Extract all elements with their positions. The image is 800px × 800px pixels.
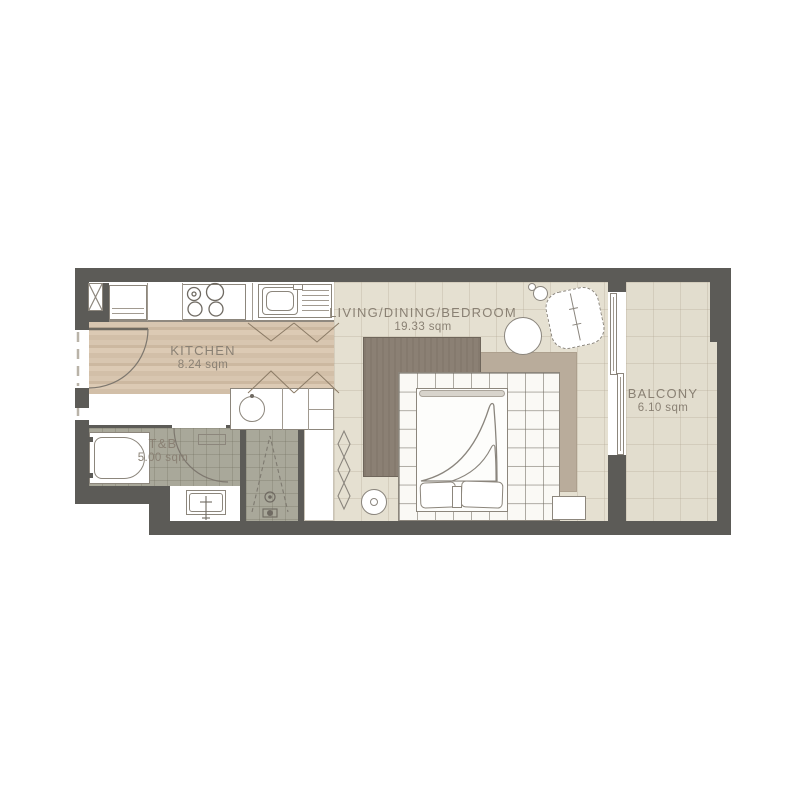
tub-tap <box>89 473 93 478</box>
pillow-icon <box>420 481 457 508</box>
balcony-label: BALCONY 6.10 sqm <box>613 387 713 415</box>
wall-bottom <box>149 521 731 535</box>
chair-centerline <box>570 293 581 340</box>
shower-floor <box>246 428 298 521</box>
wall-balcony-divider-top <box>608 268 626 292</box>
wall-balcony-divider-bottom <box>608 455 626 535</box>
kitchen-name: KITCHEN <box>123 344 283 358</box>
toilet-bath-name: T&B <box>103 437 223 451</box>
sliding-door-panel <box>610 293 617 375</box>
door-panel-line <box>613 297 614 371</box>
bed-headband <box>419 390 505 397</box>
wall-shaft-cap <box>88 311 108 322</box>
balcony-name: BALCONY <box>613 387 713 401</box>
toilet-bath-label: T&B 5.00 sqm <box>103 437 223 465</box>
shower-partition-right <box>298 426 304 521</box>
toilet-inner <box>189 493 223 512</box>
wall-left-stub <box>75 388 89 408</box>
closet-floor <box>304 428 334 521</box>
floor-lamp-inner <box>370 498 378 506</box>
toilet-bath-area: 5.00 sqm <box>103 451 223 465</box>
kitchen-label: KITCHEN 8.24 sqm <box>123 344 283 372</box>
hallway-floor <box>89 394 230 428</box>
vanity-divider <box>308 409 334 410</box>
living-name: LIVING/DINING/BEDROOM <box>323 306 523 320</box>
shaft-column <box>88 283 103 311</box>
wall-tb-bottom <box>75 486 170 504</box>
living-label: LIVING/DINING/BEDROOM 19.33 sqm <box>323 306 523 334</box>
stove-icon <box>182 284 246 320</box>
wall-top <box>75 268 731 282</box>
kitchen-area: 8.24 sqm <box>123 358 283 372</box>
wall-right-notch <box>710 268 731 342</box>
counter-divider <box>182 283 183 321</box>
counter-divider <box>252 283 253 321</box>
pillow-icon <box>461 480 504 508</box>
floorplan: KITCHEN 8.24 sqm T&B 5.00 sqm LIVING/DIN… <box>0 0 800 800</box>
refrigerator-vents <box>112 308 144 318</box>
plant-icon <box>528 283 536 291</box>
wall-step <box>149 504 170 535</box>
side-table-icon <box>552 496 586 520</box>
sink-basin-inner <box>266 291 294 311</box>
pillow-divider <box>452 486 462 508</box>
wall-left-upper <box>75 282 89 330</box>
wall-right <box>717 342 731 535</box>
vanity-divider <box>282 388 283 430</box>
living-area: 19.33 sqm <box>323 320 523 334</box>
vanity-basin-icon <box>239 396 265 422</box>
counter-divider <box>147 283 148 321</box>
balcony-area: 6.10 sqm <box>613 401 713 415</box>
tub-tap <box>89 437 93 442</box>
shower-partition-left <box>240 426 246 521</box>
wall-tb-doorhead-left <box>89 425 172 428</box>
